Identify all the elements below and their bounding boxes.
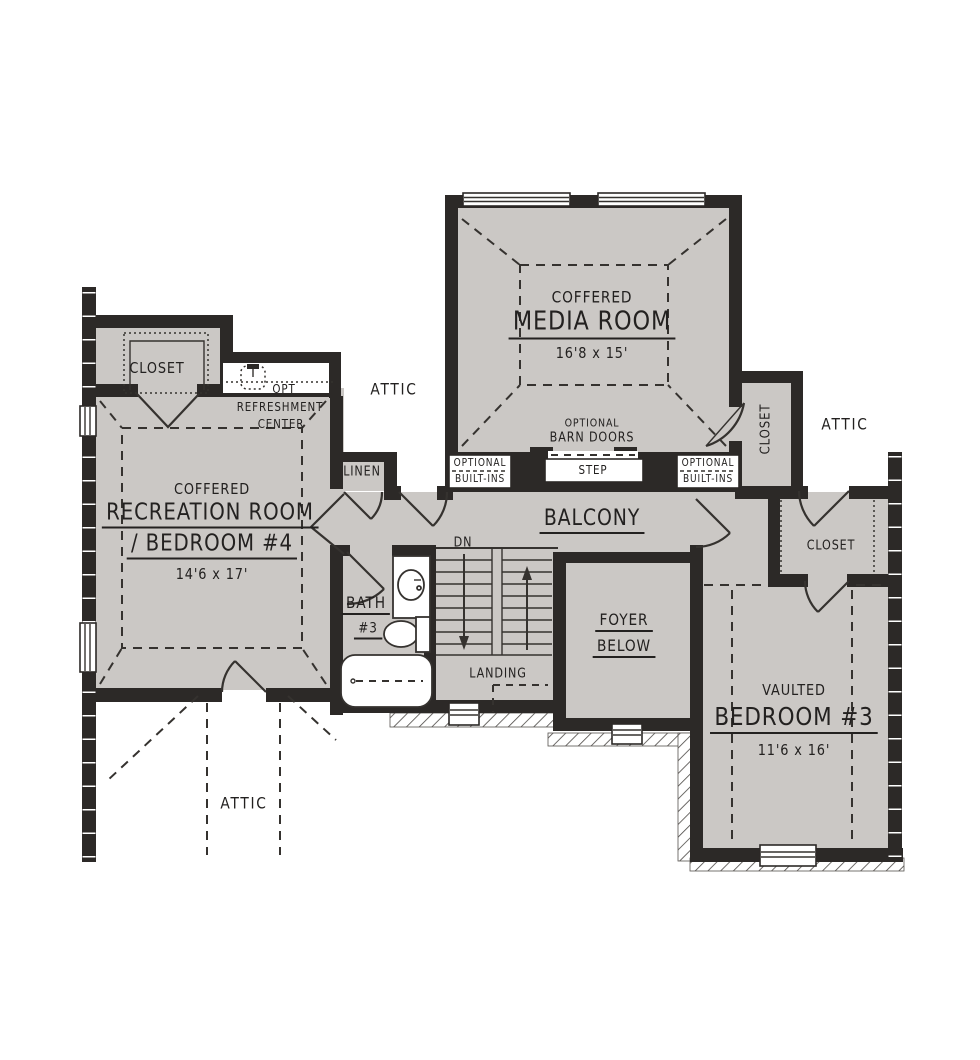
bedroom3-label: BEDROOM #3	[710, 702, 878, 734]
refreshment-label: REFRESHMENT	[237, 400, 324, 414]
barn-doors-label-1: OPTIONAL	[565, 417, 620, 430]
bedroom3-dims: 11'6 x 16'	[758, 741, 831, 759]
closet-media-label: CLOSET	[759, 404, 774, 455]
step-label: STEP	[578, 463, 607, 477]
closet-bedroom-label: CLOSET	[807, 539, 856, 554]
media-room-sub-label: COFFERED	[552, 288, 633, 307]
recreation-sub-label: COFFERED	[174, 480, 250, 498]
attic-bottom-label: ATTIC	[220, 794, 267, 813]
built-ins-right-label-2: BUILT-INS	[683, 473, 733, 485]
foyer-label-1: FOYER	[595, 610, 653, 632]
media-room-label: MEDIA ROOM	[509, 307, 676, 340]
linen-label: LINEN	[343, 465, 381, 480]
built-ins-left-label-2: BUILT-INS	[455, 473, 505, 485]
landing-label: LANDING	[469, 667, 526, 682]
built-ins-right-label-1: OPTIONAL	[682, 457, 735, 469]
bedroom3-sub-label: VAULTED	[762, 681, 826, 699]
dn-label: DN	[454, 536, 473, 551]
bath-label: BATH	[342, 593, 391, 615]
barn-doors-label-2: BARN DOORS	[550, 431, 635, 446]
recreation-room-dims: 14'6 x 17'	[176, 565, 249, 583]
closet-top-left-label: CLOSET	[129, 359, 184, 377]
recreation-room-label: RECREATION ROOM	[102, 500, 318, 529]
bath-number-label: #3	[354, 621, 382, 640]
floor-plan: CLOSET OPT REFRESHMENT CENTER ATTIC COFF…	[0, 0, 980, 1060]
balcony-label: BALCONY	[540, 506, 645, 534]
media-room-dims: 16'8 x 15'	[556, 344, 629, 362]
attic-top-label: ATTIC	[370, 380, 417, 399]
built-ins-left-label-1: OPTIONAL	[454, 457, 507, 469]
opt-label: OPT	[272, 382, 295, 396]
center-label: CENTER	[258, 417, 305, 431]
attic-right-label: ATTIC	[821, 415, 868, 434]
foyer-label-2: BELOW	[593, 636, 656, 658]
recreation-room-label-2: / BEDROOM #4	[127, 531, 298, 560]
